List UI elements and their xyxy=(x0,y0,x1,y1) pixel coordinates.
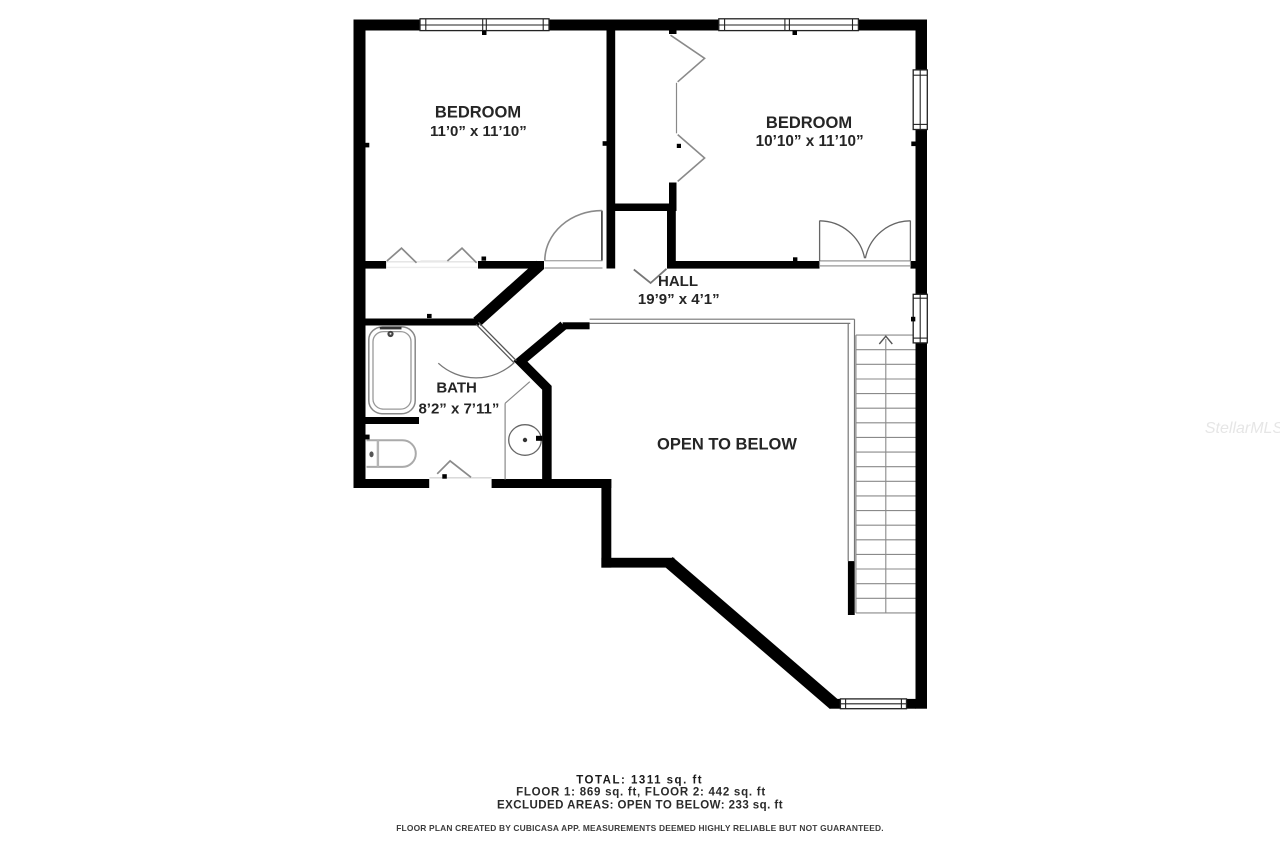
svg-text:BEDROOM: BEDROOM xyxy=(435,104,521,122)
svg-text:OPEN TO BELOW: OPEN TO BELOW xyxy=(657,435,797,453)
svg-text:HALL: HALL xyxy=(658,273,698,290)
svg-text:EXCLUDED AREAS: OPEN TO BELOW:: EXCLUDED AREAS: OPEN TO BELOW: 233 sq. f… xyxy=(497,800,783,812)
svg-text:8’2” x 7’11”: 8’2” x 7’11” xyxy=(418,400,499,417)
svg-text:11’0” x 11’10”: 11’0” x 11’10” xyxy=(430,123,527,140)
svg-text:BEDROOM: BEDROOM xyxy=(766,114,852,132)
svg-text:TOTAL: 1311 sq. ft: TOTAL: 1311 sq. ft xyxy=(576,775,703,787)
svg-text:FLOOR PLAN CREATED BY CUBICASA: FLOOR PLAN CREATED BY CUBICASA APP. MEAS… xyxy=(396,823,884,833)
svg-text:StellarMLS: StellarMLS xyxy=(1205,420,1280,437)
svg-text:FLOOR 1: 869 sq. ft, FLOOR 2:: FLOOR 1: 869 sq. ft, FLOOR 2: 442 sq. ft xyxy=(516,787,766,799)
svg-text:19’9” x 4’1”: 19’9” x 4’1” xyxy=(638,291,720,308)
svg-text:BATH: BATH xyxy=(436,380,477,397)
svg-text:10’10” x 11’10”: 10’10” x 11’10” xyxy=(756,133,864,150)
